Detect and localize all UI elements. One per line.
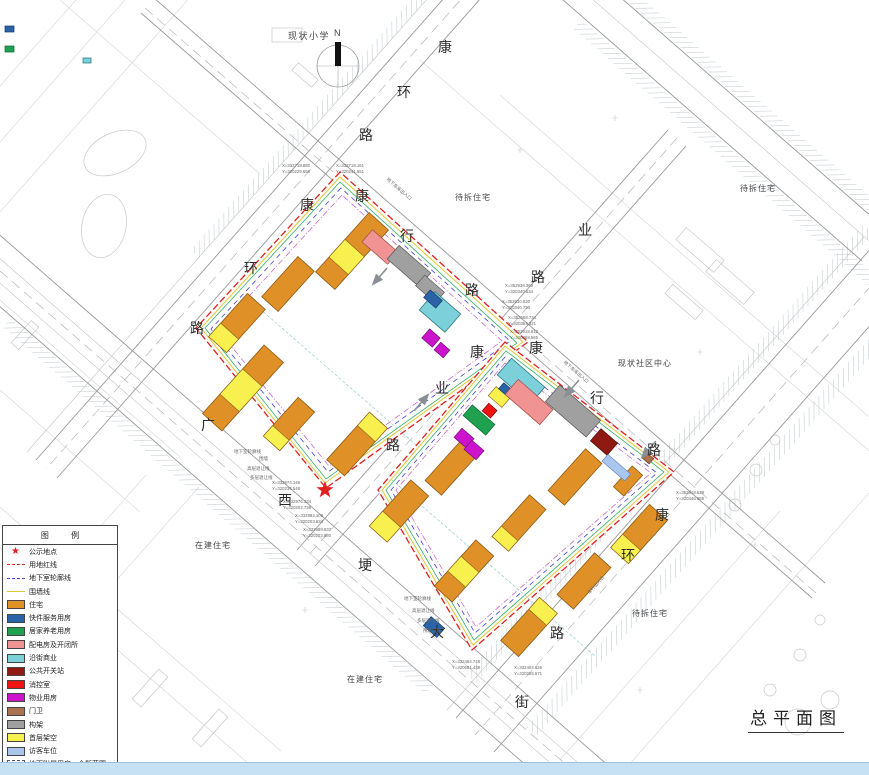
annotation-garage-entrance: 地下车库出入口 <box>385 176 413 202</box>
pond-outline <box>77 121 154 185</box>
legend-label: 门卫 <box>29 706 43 716</box>
road-name-char: 路 <box>647 442 661 458</box>
coordinate-y: Y=320202.880 <box>303 533 332 538</box>
red-line-swatch <box>7 564 25 565</box>
legend-label: 沿街商业 <box>29 653 57 663</box>
notice-star-icon: ★ <box>11 547 20 557</box>
coordinate-x: X=332464.748 <box>452 659 481 664</box>
legend-panel: 图 例 ★ 公示地点 用地红线 地下室轮廓线 围墙线 住宅 快件服务用房 居家养… <box>2 525 118 775</box>
annotation-highrise: 高层退让线 <box>412 607 435 614</box>
coordinate-x: X=352918.629 <box>676 490 705 495</box>
road-name-char: 广 <box>201 417 215 433</box>
legend-row: 消控室 <box>3 678 117 691</box>
coordinate-y: Y=320368.565 <box>510 335 539 340</box>
existing-school-building-outline <box>292 63 318 88</box>
fire-control-swatch <box>7 680 25 689</box>
legend-label: 用地红线 <box>29 560 57 570</box>
legend-row: 居家养老用房 <box>3 625 117 638</box>
coordinate-y: Y=320203.634 <box>295 519 324 524</box>
legend-label: 公共开关站 <box>29 666 64 676</box>
coordinate-x: X=352630.530 <box>502 299 531 304</box>
road-name-char: 路 <box>359 127 373 143</box>
legend-row: 围墙线 <box>3 585 117 598</box>
legend-label: 消控室 <box>29 680 50 690</box>
legend-row: 构架 <box>3 718 117 731</box>
utility-symbol <box>5 46 14 52</box>
coordinate-y: Y=320265.671 <box>514 671 543 676</box>
legend-label: 快件服务用房 <box>29 613 71 623</box>
utility-symbol <box>83 58 91 63</box>
legend-label: 居家养老用房 <box>29 626 71 636</box>
power-distribution-swatch <box>7 640 25 649</box>
coordinate-x: X=332976.334 <box>283 499 312 504</box>
road-name-char: 路 <box>386 437 400 453</box>
legend-row: 配电房及开闭所 <box>3 638 117 651</box>
coordinate-x: X=332989.833 <box>303 527 332 532</box>
school-label: 现状小学 <box>288 30 330 41</box>
coordinate-y: Y=320340.534 <box>505 289 534 294</box>
north-needle <box>335 42 341 66</box>
road-name-char: 环 <box>397 84 411 100</box>
road-name-char: 康 <box>300 197 314 213</box>
road-name-char: 路 <box>190 320 204 336</box>
legend-label: 首层架空 <box>29 733 57 743</box>
visitor-parking-swatch <box>7 747 25 756</box>
legend-row: 首层架空 <box>3 731 117 744</box>
residential-swatch <box>7 600 25 609</box>
coordinate-x: X=332719.161 <box>336 163 365 168</box>
coordinate-x: X=352918.612 <box>510 329 539 334</box>
road-name-char: 行 <box>400 228 414 244</box>
road-name-char: 康 <box>438 39 452 55</box>
under-construction-label: 在建住宅 <box>347 674 383 684</box>
legend-row: 门卫 <box>3 705 117 718</box>
coordinate-x: X=332983.109 <box>295 513 324 518</box>
coordinate-x: X=352658.734 <box>508 315 537 320</box>
legend-row: 沿街商业 <box>3 651 117 664</box>
site-plan-canvas: N 康 环 路 康 环 路 康 行 路 康 行 路 业 路 康 业 路 康 环 … <box>0 0 869 775</box>
annotation-multistorey: 多层退让线 <box>250 474 273 481</box>
road-name-char: 业 <box>578 222 592 238</box>
legend-row: 公共开关站 <box>3 665 117 678</box>
demolish-label: 待拆住宅 <box>740 183 776 193</box>
road-name-char: 康 <box>529 340 543 356</box>
coordinate-x: X=352936.369 <box>505 283 534 288</box>
road-name-char: 路 <box>465 282 479 298</box>
legend-row: 用地红线 <box>3 558 117 571</box>
legend-header: 图 例 <box>3 526 117 545</box>
elderly-care-swatch <box>7 627 25 636</box>
road-name-char: 埂 <box>358 557 372 573</box>
legend-label: 住宅 <box>29 600 43 610</box>
road-name-char: 环 <box>244 260 258 276</box>
under-construction-label: 在建住宅 <box>195 540 231 550</box>
community-center-label: 现状社区中心 <box>618 358 672 368</box>
coordinate-y: Y=320681.438 <box>452 665 481 670</box>
legend-row: 访客车位 <box>3 744 117 757</box>
coordinate-y: Y=320354.321 <box>508 321 537 326</box>
coordinate-y: Y=320446.659 <box>676 496 705 501</box>
road-name-char: 环 <box>621 547 635 563</box>
frame-structure-swatch <box>7 720 25 729</box>
coordinate-x: X=332718.880 <box>282 163 311 168</box>
road-name-char: 路 <box>550 625 564 641</box>
drawing-title: 总平面图 <box>748 704 844 733</box>
annotation-wall: 围墙 <box>259 455 268 462</box>
north-letter: N <box>334 28 342 38</box>
demolish-label: 待拆住宅 <box>455 192 491 202</box>
legend-row: 物业用房 <box>3 691 117 704</box>
legend-label: 构架 <box>29 720 43 730</box>
road-name-char: 康 <box>470 344 484 360</box>
community-center-building-outline <box>676 228 724 273</box>
gatehouse-swatch <box>7 707 25 716</box>
legend-label: 配电房及开闭所 <box>29 640 78 650</box>
annotation-garage-entrance: 地下车库出入口 <box>562 359 590 385</box>
utility-symbol <box>5 26 14 32</box>
community-center-building-outline <box>706 260 754 305</box>
legend-label: 公示地点 <box>29 547 57 557</box>
site-plan-page: N 康 环 路 康 环 路 康 行 路 康 行 路 业 路 康 业 路 康 环 … <box>0 0 869 775</box>
legend-row: 住宅 <box>3 598 117 611</box>
legend-row: 地下室轮廓线 <box>3 572 117 585</box>
legend-row: ★ 公示地点 <box>3 545 117 558</box>
coordinate-y: Y=320241.651 <box>336 169 365 174</box>
basement-line-swatch <box>7 578 25 579</box>
bottom-edge-strip <box>0 762 869 775</box>
coordinate-y: Y=320202.738 <box>283 505 312 510</box>
annotation-redline: 用地红线 <box>423 627 441 634</box>
road-name-char: 街 <box>515 694 529 710</box>
wall-line-swatch <box>7 591 25 592</box>
road-name-char: 业 <box>435 380 449 396</box>
legend-row: 快件服务用房 <box>3 611 117 624</box>
public-switch-swatch <box>7 667 25 676</box>
road-name-char: 康 <box>655 507 669 523</box>
road-name-char: 康 <box>355 188 369 204</box>
coordinate-x: X=332974.148 <box>272 480 301 485</box>
annotation-basement: 地下室轮廓线 <box>404 595 431 602</box>
street-commerce-swatch <box>7 654 25 663</box>
coordinate-y: Y=320340.734 <box>502 305 531 310</box>
legend-label: 物业用房 <box>29 693 57 703</box>
demolish-label: 待拆住宅 <box>632 608 668 618</box>
annotation-multistorey: 多层退让线 <box>417 617 440 624</box>
annotation-basement: 地下室轮廓线 <box>234 448 261 455</box>
coordinate-y: Y=320236.548 <box>272 486 301 491</box>
road-name-char: 行 <box>590 390 604 406</box>
under-construction-building-outline <box>132 669 168 707</box>
stilt-floor-swatch <box>7 733 25 742</box>
coordinate-x: X=332404.626 <box>514 665 543 670</box>
legend-label: 地下室轮廓线 <box>29 573 71 583</box>
road-name-char: 路 <box>531 269 545 285</box>
express-service-swatch <box>7 614 25 623</box>
legend-label: 访客车位 <box>29 746 57 756</box>
coordinate-y: Y=320229.656 <box>282 169 311 174</box>
pond-outline <box>76 190 132 262</box>
legend-label: 围墙线 <box>29 587 50 597</box>
property-mgmt-swatch <box>7 693 25 702</box>
annotation-highrise: 高层退让线 <box>247 465 270 472</box>
